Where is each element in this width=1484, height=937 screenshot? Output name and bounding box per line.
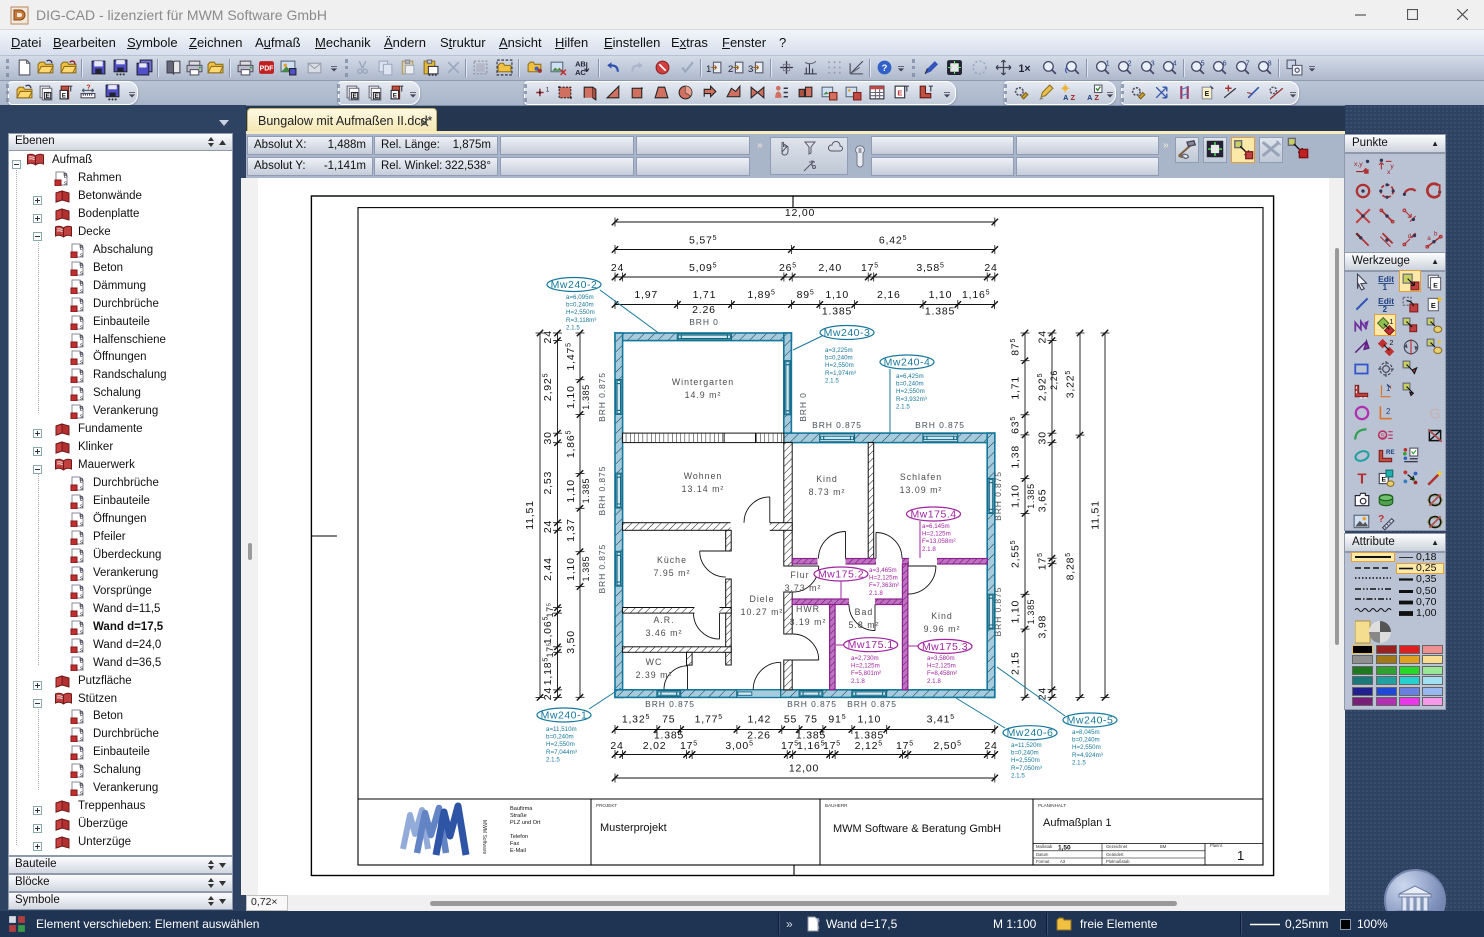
svg-text:3,225: 3,225 [1065,370,1077,398]
svg-text:BRH 0.875: BRH 0.875 [597,466,607,516]
svg-text:24: 24 [542,687,554,700]
svg-text:b=0,240m: b=0,240m [1011,750,1039,757]
svg-text:875: 875 [1010,338,1022,356]
svg-text:1.385: 1.385 [581,384,591,410]
svg-text:175: 175 [1037,552,1049,570]
svg-text:y: y [1390,163,1394,170]
svg-text:2.1.5: 2.1.5 [546,756,560,763]
svg-text:Aufmaßplan 1: Aufmaßplan 1 [1043,817,1111,829]
svg-text:a=6,145m: a=6,145m [922,523,950,530]
svg-text:E: E [62,92,66,99]
svg-text:Mw240-6: Mw240-6 [1007,727,1054,739]
svg-text:R=1,974m³: R=1,974m³ [825,370,856,377]
svg-text:B: B [79,568,83,574]
svg-text:3,585: 3,585 [916,262,944,274]
svg-text:a=6,425m: a=6,425m [896,373,924,380]
svg-text:B: B [79,748,83,754]
svg-text:10.27 m²: 10.27 m² [741,607,784,617]
svg-text:B: B [79,317,83,323]
svg-text:2.1.8: 2.1.8 [869,590,883,597]
svg-text:?: ? [1378,514,1384,525]
svg-text:2,555: 2,555 [1010,540,1022,568]
svg-text:1,865: 1,865 [565,430,577,458]
svg-text:Küche: Küche [657,555,687,565]
svg-text:2,16: 2,16 [877,289,901,301]
svg-text:75: 75 [662,714,675,726]
svg-text:s: s [80,289,83,294]
svg-text:3,98: 3,98 [1037,615,1049,639]
svg-text:2.1.8: 2.1.8 [851,678,865,685]
svg-text:175: 175 [680,740,698,752]
svg-text:2.1.5: 2.1.5 [825,377,839,384]
svg-text:WC: WC [646,657,663,667]
svg-text:a=3,225m: a=3,225m [825,347,853,354]
svg-text:7: 7 [1246,60,1250,67]
svg-text:B: B [79,299,83,305]
svg-text:Maßstab: Maßstab [1036,844,1053,849]
svg-text:s: s [80,504,83,509]
svg-text:A: A [1087,93,1093,101]
svg-text:A: A [1063,93,1069,101]
svg-text:b: b [1434,231,1438,238]
svg-text:s: s [80,253,83,258]
svg-text:E: E [1205,91,1210,98]
svg-text:B: B [63,173,67,179]
svg-text:1,165: 1,165 [962,289,990,301]
svg-text:2.1.8: 2.1.8 [922,546,936,553]
svg-text:Flur: Flur [790,570,809,580]
svg-text:a=2,730m: a=2,730m [851,655,879,662]
svg-text:4: 4 [1173,60,1177,67]
svg-text:1,71: 1,71 [1010,376,1022,400]
svg-text:175: 175 [823,740,841,752]
svg-text:b=0,240m: b=0,240m [546,734,574,741]
svg-text:s: s [80,630,83,635]
svg-text:B: B [79,479,83,485]
svg-text:MWM Software & Beratung GmbH: MWM Software & Beratung GmbH [833,823,1001,835]
svg-text:R=7,044m³: R=7,044m³ [546,749,577,756]
svg-text:E: E [1431,301,1436,310]
svg-text:1,97: 1,97 [634,289,658,301]
svg-text:s: s [80,360,83,365]
svg-text:B: B [79,532,83,538]
svg-text:G: G [1429,406,1440,421]
svg-text:2.1.5: 2.1.5 [896,403,910,410]
svg-text:B: B [79,640,83,646]
svg-text:E: E [1433,283,1438,290]
svg-text:2: 2 [1383,305,1388,313]
svg-text:s: s [80,325,83,330]
svg-text:Telefon: Telefon [510,834,528,840]
svg-text:1: 1 [1106,60,1110,67]
svg-text:1,10: 1,10 [825,289,849,301]
svg-text:a: a [1427,235,1431,242]
svg-text:A3: A3 [1060,859,1066,864]
svg-text:11,51: 11,51 [1090,500,1102,530]
svg-text:1: 1 [1237,848,1244,863]
svg-text:2.1.5: 2.1.5 [566,324,580,331]
svg-text:5.8 m²: 5.8 m² [849,620,880,630]
svg-text:s: s [80,307,83,312]
svg-text:1,10: 1,10 [565,385,577,409]
svg-text:s: s [80,576,83,581]
svg-text:3,50: 3,50 [565,630,577,654]
svg-text:PROJEKT: PROJEKT [596,803,617,808]
svg-text:B: B [79,658,83,664]
svg-text:12,00: 12,00 [785,207,815,219]
svg-text:B: B [79,622,83,628]
svg-text:1,38: 1,38 [1010,445,1022,469]
svg-text:2,53: 2,53 [542,471,554,495]
svg-text:b=0,240m: b=0,240m [1072,737,1100,744]
svg-text:1,475: 1,475 [565,342,577,370]
svg-text:H=2,125m: H=2,125m [922,531,951,538]
svg-text:s: s [80,719,83,724]
svg-text:B: B [79,353,83,359]
svg-text:2,02: 2,02 [643,740,667,752]
svg-text:2,125: 2,125 [855,740,883,752]
svg-text:265: 265 [779,262,797,274]
svg-text:Kind: Kind [931,611,953,621]
svg-text:2: 2 [1389,338,1393,347]
svg-text:915: 915 [828,714,846,726]
svg-text:MWM Software: MWM Software [481,820,487,854]
svg-text:Straße: Straße [510,813,527,819]
svg-text:3.46 m²: 3.46 m² [646,628,683,638]
svg-text:1,42: 1,42 [747,714,771,726]
svg-text:Plotmaßstab: Plotmaßstab [1106,859,1130,864]
svg-text:s: s [80,791,83,796]
svg-text:E: E [45,93,49,100]
svg-text:24: 24 [611,262,624,274]
svg-text:Gezeichnet: Gezeichnet [1106,844,1128,849]
svg-text:S: S [1380,432,1385,439]
svg-text:H=2,550m: H=2,550m [1011,757,1040,764]
svg-text:1: 1 [1383,283,1388,291]
svg-text:a=6,095m: a=6,095m [566,294,594,301]
svg-text:175: 175 [861,262,879,274]
svg-text:1: 1 [1389,317,1393,326]
svg-text:1,185: 1,185 [542,657,554,685]
svg-text:Mw175.1: Mw175.1 [848,639,894,651]
svg-text:?: ? [882,63,888,74]
svg-text:BRH 0.875: BRH 0.875 [597,372,607,422]
svg-text:b=0,240m: b=0,240m [566,302,594,309]
svg-text:s: s [64,181,67,186]
svg-text:5,575: 5,575 [689,235,717,247]
svg-text:24: 24 [542,330,554,343]
svg-text:B: B [79,281,83,287]
svg-text:Mw240-1: Mw240-1 [541,710,588,722]
svg-text:E: E [374,93,378,100]
svg-text:s: s [80,486,83,491]
svg-text:a=8,045m: a=8,045m [1072,729,1100,736]
svg-text:b=0,240m: b=0,240m [896,381,924,388]
svg-text:PLZ und Ort: PLZ und Ort [510,820,541,826]
svg-text:Kind: Kind [816,474,838,484]
svg-text:BRH 0.875: BRH 0.875 [847,699,897,709]
svg-text:1.385: 1.385 [925,306,955,318]
svg-text:?: ? [86,84,90,91]
svg-text:6: 6 [1223,60,1227,67]
svg-text:1,065: 1,065 [542,616,554,644]
svg-text:s: s [80,666,83,671]
svg-text:1,165: 1,165 [797,740,825,752]
svg-text:Mw240-4: Mw240-4 [884,357,931,369]
svg-text:F=13,058m²: F=13,058m² [922,538,956,545]
svg-text:1,10: 1,10 [929,289,953,301]
svg-text:B: B [79,550,83,556]
svg-text:1,895: 1,895 [747,289,775,301]
svg-text:Mw175.3: Mw175.3 [922,641,968,653]
svg-text:A.R.: A.R. [653,615,674,625]
svg-text:1: 1 [546,86,550,93]
svg-text:2,26: 2,26 [1049,370,1059,390]
svg-text:1×: 1× [1018,63,1030,75]
svg-text:1,10: 1,10 [1010,484,1022,508]
svg-text:R=4,924m³: R=4,924m³ [1072,752,1103,759]
svg-text:24: 24 [984,740,997,752]
svg-text:s: s [80,737,83,742]
svg-text:B: B [79,515,83,521]
svg-text:BM: BM [1160,844,1167,849]
svg-text:1.385: 1.385 [1026,599,1036,625]
svg-text:8: 8 [1268,60,1272,67]
svg-text:H=2,550m: H=2,550m [1072,744,1101,751]
svg-text:8.73 m²: 8.73 m² [809,487,846,497]
svg-text:11,51: 11,51 [524,500,536,530]
svg-text:H=2,550m: H=2,550m [566,309,595,316]
svg-text:1,325: 1,325 [622,714,650,726]
svg-text:3: 3 [748,64,753,75]
svg-text:HWR: HWR [796,604,820,614]
svg-text:3,65: 3,65 [1037,489,1049,513]
svg-text:1.385: 1.385 [822,306,852,318]
svg-text:2,505: 2,505 [933,740,961,752]
svg-text:30: 30 [542,431,554,444]
svg-text:2.1.5: 2.1.5 [1072,759,1086,766]
svg-text:E: E [352,93,356,100]
svg-text:8,285: 8,285 [1065,552,1077,580]
svg-text:B: B [79,604,83,610]
svg-text:Datum: Datum [1036,852,1049,857]
svg-text:BRH 0.875: BRH 0.875 [993,587,1003,637]
svg-text:x,y: x,y [1354,161,1363,168]
svg-text:1.385: 1.385 [1026,483,1036,509]
svg-text:R=3,118m³: R=3,118m³ [566,317,596,324]
svg-text:75: 75 [804,714,817,726]
svg-text:9.96 m²: 9.96 m² [924,624,961,634]
svg-text:a=3,465m: a=3,465m [869,567,897,574]
svg-text:R=7,050m³: R=7,050m³ [1011,765,1042,772]
svg-text:BRH 0.875: BRH 0.875 [812,420,862,430]
svg-text:Wintergarten: Wintergarten [672,377,734,387]
svg-text:30: 30 [1037,431,1049,444]
svg-text:24: 24 [1037,687,1049,700]
svg-text:2,40: 2,40 [818,262,842,274]
svg-text:H=2,125m: H=2,125m [927,663,956,670]
svg-text:B: B [816,918,820,924]
svg-text:E: E [393,92,397,99]
svg-text:5,095: 5,095 [689,262,717,274]
svg-text:B: B [79,371,83,377]
svg-text:2,15: 2,15 [1010,651,1022,675]
svg-text:Plannr.: Plannr. [1210,843,1223,848]
svg-text:24: 24 [610,740,623,752]
svg-text:b=0,240m: b=0,240m [825,355,853,362]
svg-text:F=5,801m²: F=5,801m² [851,670,881,677]
svg-text:s: s [80,414,83,419]
svg-text:1,50: 1,50 [1058,845,1071,852]
svg-text:B: B [79,730,83,736]
svg-text:Baufirma: Baufirma [510,806,533,812]
svg-text:Musterprojekt: Musterprojekt [600,822,667,834]
svg-text:1.385: 1.385 [581,478,591,504]
svg-text:3,73 m²: 3,73 m² [785,583,822,593]
svg-text:Wohnen: Wohnen [684,471,723,481]
svg-text:2: 2 [1386,407,1390,416]
svg-text:2: 2 [728,64,733,75]
svg-text:24: 24 [984,262,997,274]
svg-text:BRH 0: BRH 0 [798,392,808,422]
svg-text:1,10: 1,10 [565,557,577,581]
svg-text:BRH 0: BRH 0 [689,317,719,327]
svg-text:Mw240-5: Mw240-5 [1067,715,1114,727]
svg-text:s: s [80,648,83,653]
svg-text:Z: Z [1071,93,1076,101]
svg-text:Geändert: Geändert [1106,852,1124,857]
svg-text:2.39 m²: 2.39 m² [636,670,673,680]
svg-text:BRH 0.875: BRH 0.875 [645,699,695,709]
svg-text:a=3,580m: a=3,580m [927,655,955,662]
svg-text:1,775: 1,775 [695,714,723,726]
svg-text:B: B [79,263,83,269]
svg-text:H=2,125m: H=2,125m [869,575,898,582]
svg-text:Fax: Fax [510,841,520,847]
svg-text:s: s [80,558,83,563]
svg-text:Diele: Diele [749,594,774,604]
svg-text:PDF: PDF [260,66,274,73]
svg-text:s: s [80,378,83,383]
svg-text:E-Mail: E-Mail [510,848,526,854]
svg-text:F=7,363m²: F=7,363m² [869,582,899,589]
svg-text:a=11,520m: a=11,520m [1011,742,1042,749]
svg-text:BAUHERR: BAUHERR [825,803,848,808]
svg-text:Bad: Bad [855,607,874,617]
svg-text:T: T [1358,472,1367,487]
svg-text:B: B [79,766,83,772]
svg-text:2.26: 2.26 [692,304,716,316]
svg-text:BRH 0.875: BRH 0.875 [787,699,837,709]
svg-text:1.385: 1.385 [581,556,591,582]
svg-text:Schlafen: Schlafen [900,472,942,482]
svg-text:s: s [80,343,83,348]
svg-text:2,925: 2,925 [542,373,554,401]
svg-text:3,005: 3,005 [725,740,753,752]
svg-text:s: s [817,925,820,931]
svg-text:13.14 m²: 13.14 m² [682,484,725,494]
svg-text:B: B [79,497,83,503]
svg-text:1,10: 1,10 [1010,600,1022,624]
svg-text:1,10: 1,10 [857,714,881,726]
svg-text:Mw175.2: Mw175.2 [818,569,864,581]
svg-text:Mw175.4: Mw175.4 [910,509,956,521]
svg-text:a=11,510m: a=11,510m [546,726,577,733]
svg-text:635: 635 [1010,416,1022,434]
svg-text:s: s [80,594,83,599]
svg-text:2.1.5: 2.1.5 [1011,772,1025,779]
svg-text:s: s [80,522,83,527]
svg-text:H=2,550m: H=2,550m [825,362,854,369]
svg-text:BRH 0.875: BRH 0.875 [915,420,965,430]
svg-text:3.19 m²: 3.19 m² [790,617,827,627]
svg-text:B: B [79,335,83,341]
svg-text:s: s [80,271,83,276]
svg-text:s: s [80,755,83,760]
svg-text:s: s [80,612,83,617]
svg-text:2: 2 [1128,60,1132,67]
svg-text:E: E [897,89,902,98]
svg-text:895: 895 [797,289,815,301]
svg-text:s: s [80,773,83,778]
svg-text:3,415: 3,415 [927,714,955,726]
svg-text:s: s [80,396,83,401]
svg-text:H=2,125m: H=2,125m [851,663,880,670]
svg-text:s: s [80,540,83,545]
svg-text:12,00: 12,00 [789,763,819,775]
svg-text:1,71: 1,71 [693,289,717,301]
svg-text:2.1.8: 2.1.8 [927,678,941,685]
svg-text:1,37: 1,37 [565,518,577,542]
svg-text:H=2,550m: H=2,550m [546,741,575,748]
svg-text:B: B [79,407,83,413]
svg-text:R=3,932m³: R=3,932m³ [896,396,927,403]
svg-text:B: B [79,712,83,718]
svg-text:REB: REB [1386,449,1395,456]
svg-text:BRH 0.875: BRH 0.875 [597,544,607,594]
svg-text:1,10: 1,10 [565,479,577,503]
svg-text:BRH 0.875: BRH 0.875 [993,471,1003,521]
svg-text:175: 175 [896,740,914,752]
svg-text:5: 5 [1201,60,1205,67]
svg-text:F=8,458m²: F=8,458m² [927,670,957,677]
svg-text:Format: Format [1036,859,1050,864]
svg-text:6,425: 6,425 [879,235,907,247]
svg-text:d: d [1408,233,1412,240]
svg-text:24: 24 [1037,330,1049,343]
svg-text:B: B [79,784,83,790]
svg-text:Z: Z [1095,93,1100,101]
svg-text:B: B [79,586,83,592]
svg-text:24: 24 [542,520,554,533]
svg-text:7.95 m²: 7.95 m² [654,568,691,578]
svg-text:B: B [79,245,83,251]
svg-text:3: 3 [1151,60,1155,67]
svg-text:B: B [79,389,83,395]
svg-text:2,925: 2,925 [1037,373,1049,401]
svg-text:175: 175 [545,603,555,618]
svg-text:PLANINHALT: PLANINHALT [1038,803,1066,808]
svg-text:1: 1 [706,64,711,75]
svg-text:13.09 m²: 13.09 m² [900,485,943,495]
svg-text:55: 55 [784,714,797,726]
svg-text:H=2,550m: H=2,550m [896,388,925,395]
svg-text:Mw240-2: Mw240-2 [551,279,598,291]
svg-text:14.9 m²: 14.9 m² [685,390,722,400]
svg-text:Mw240-3: Mw240-3 [824,327,871,339]
svg-text:2,44: 2,44 [542,557,554,581]
